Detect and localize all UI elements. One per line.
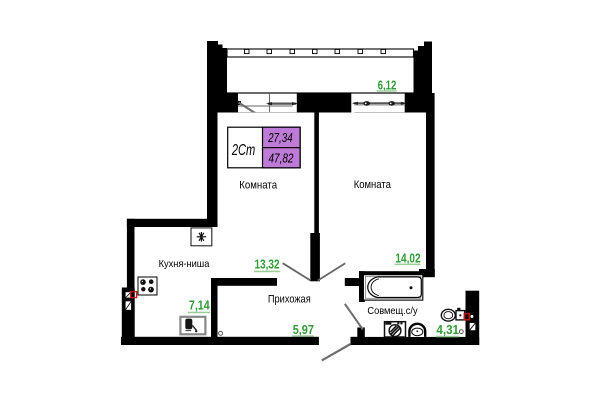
svg-text:Комната: Комната: [239, 180, 277, 192]
svg-text:27,34: 27,34: [267, 130, 292, 145]
svg-text:5,97: 5,97: [293, 323, 314, 337]
svg-text:7,14: 7,14: [189, 299, 210, 313]
svg-text:47,82: 47,82: [269, 150, 295, 165]
svg-text:Прихожая: Прихожая: [268, 293, 311, 305]
svg-text:13,32: 13,32: [255, 257, 280, 271]
svg-text:4,31: 4,31: [436, 323, 459, 337]
svg-text:Комната: Комната: [354, 179, 391, 191]
svg-text:Совмещ.с/у: Совмещ.с/у: [367, 306, 418, 317]
svg-text:2Ст: 2Ст: [231, 142, 255, 159]
svg-text:Кухня-ниша: Кухня-ниша: [159, 259, 210, 270]
svg-text:14,02: 14,02: [395, 251, 420, 265]
